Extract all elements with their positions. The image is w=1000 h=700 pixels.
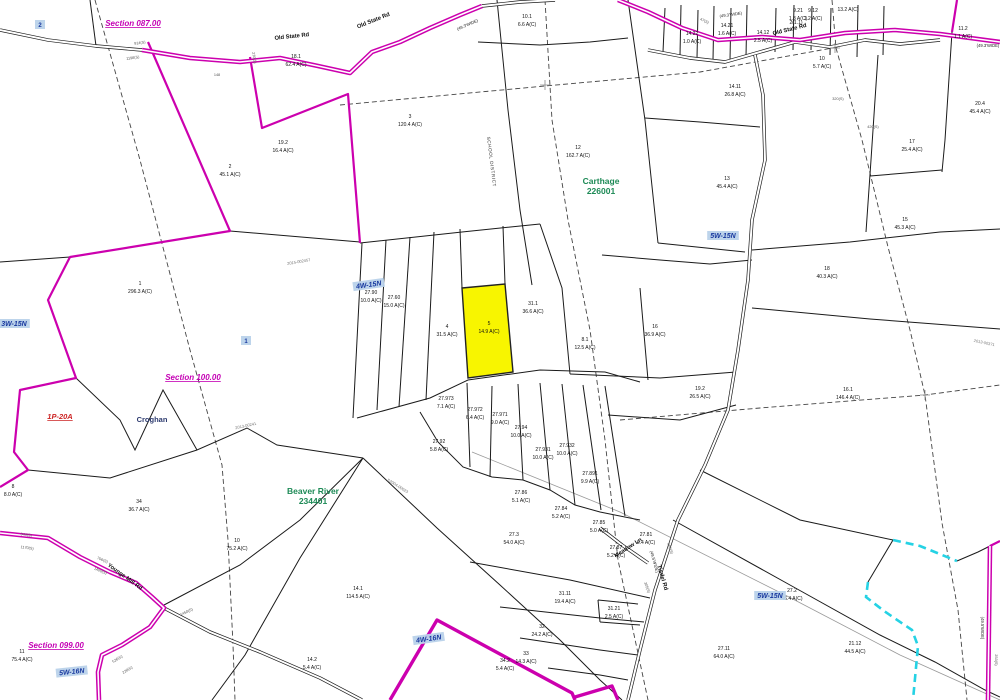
parcel-id: 27.3 (509, 532, 519, 538)
district-code: 234401 (299, 496, 328, 506)
parcel-acreage: 296.3 A(C) (128, 289, 152, 295)
road-name-label: Old State Rd (274, 32, 310, 42)
section-label: Section 087.00 (105, 19, 161, 28)
parcel-acreage: 6.6 A(C) (518, 22, 537, 28)
highlighted-parcel-id: 5 (488, 321, 491, 327)
parcel-acreage: 44.5 A(C) (844, 649, 865, 655)
school-district-label: SCHOOL DISTRICT (486, 136, 497, 187)
parcel-acreage: 36.7 A(C) (128, 507, 149, 513)
parcel-acreage: 36.6 A(C) (522, 309, 543, 315)
parcel-id: 27.94 (515, 425, 528, 431)
distance-label: 148 (214, 73, 220, 77)
parcel-id: 27.972 (467, 407, 483, 413)
parcel-id: 31.1 (528, 301, 538, 307)
parcel-acreage: 45.4 A(C) (716, 184, 737, 190)
parcel-id: 16.1 (843, 387, 853, 393)
road-name-label: Younge Mill Rd (106, 563, 143, 592)
parcel-id: 14.21 (721, 23, 734, 29)
parcel-id: 27.90 (365, 290, 378, 296)
parcel-acreage: 6.4 A(C) (466, 415, 485, 421)
distance-label: 1170(S) (20, 545, 34, 551)
parcel-acreage: 10.0 A(C) (360, 298, 381, 304)
parcel-acreage: 1.2 A(C) (804, 16, 823, 22)
parcel-id: 27.2 (787, 588, 797, 594)
parcel-acreage: 114.5 A(C) (346, 594, 370, 600)
parcel-id: 10 (234, 538, 240, 544)
tax-map: 1296.3 A(C)245.1 A(C)19.216.4 A(C)18.162… (0, 0, 1000, 700)
parcel-id: 11 (19, 649, 24, 655)
parcel-id: 3 (409, 114, 412, 120)
parcel-id: 14.1 (353, 586, 363, 592)
sheet-ref-label: 5W-15N (757, 593, 783, 600)
parcel-id: 17 (909, 139, 915, 145)
parcel-acreage: 2.5 A(C) (754, 38, 773, 44)
parcel-acreage: 2.5 A(C) (605, 614, 624, 620)
road-width-label: (49.3'WIDE) (977, 43, 1000, 48)
parcel-id: 27.973 (438, 396, 454, 402)
parcel-acreage: 75.4 A(C) (11, 657, 32, 663)
distance-label: 420(S) (867, 125, 879, 129)
parcel-acreage: 5.1 A(C) (512, 498, 531, 504)
district-name: Beaver River (287, 486, 340, 496)
parcel-id: 4 (446, 324, 449, 330)
parcel-acreage: 75.2 A(C) (226, 546, 247, 552)
parcel-id: 2 (229, 164, 232, 170)
parcel-id: 9.12 (808, 8, 818, 14)
parcel-id: 14.11 (729, 84, 741, 90)
parcel-acreage: 13.2 A(C) (837, 7, 858, 13)
deed-ref-label: S2004-00023 (386, 477, 410, 494)
parcel-id: 19.2 (695, 386, 705, 392)
parcel-acreage: 25.4 A(C) (901, 147, 922, 153)
distance-label: 253(S) (994, 654, 998, 666)
parcel-id: 15 (902, 217, 908, 223)
parcel-acreage: 26.8 A(C) (724, 92, 745, 98)
parcel-id: 10.1 (522, 14, 532, 20)
parcel-id: 18 (824, 266, 830, 272)
sheet-ref-label: 5W-16N (59, 668, 86, 678)
parcel-id: 20.4 (975, 101, 985, 107)
parcel-acreage: 45.3 A(C) (894, 225, 915, 231)
parcel-acreage: 64.0 A(C) (713, 654, 734, 660)
parcel-id: 34 (136, 499, 142, 505)
parcel-id: 27.891 (582, 471, 598, 477)
distance-label: 228(S) (122, 665, 134, 675)
parcel-id: 27.932 (559, 443, 575, 449)
parcel-id: 34.2 (500, 658, 510, 664)
parcel-id: 1 (139, 281, 142, 287)
parcel-id: 14.2 (307, 657, 317, 663)
parcel-id: 27.931 (535, 447, 551, 453)
parcel-id: 18.1 (291, 54, 301, 60)
parcel-id: 14.12 (757, 30, 770, 36)
place-label: Croghan (137, 415, 168, 424)
parcel-id: 27.92 (433, 439, 446, 445)
parcel-id: 8 (12, 484, 15, 490)
parcel-acreage: 5.4 A(C) (496, 666, 515, 672)
parcel-id: 27.85 (593, 520, 606, 526)
parcel-acreage: 1.1 A(C) (954, 34, 973, 40)
parcel-acreage: 10.0 A(C) (510, 433, 531, 439)
distance-label: 47(S) (699, 17, 710, 25)
district-name: Carthage (583, 176, 620, 186)
parcel-acreage: 31.5 A(C) (436, 332, 457, 338)
section-label: Section 100.00 (165, 373, 221, 382)
parcel-acreage: 14.3 A(C) (515, 659, 536, 665)
parcel-acreage: 19.4 A(C) (554, 599, 575, 605)
parcel-acreage: 1.0 A(C) (683, 39, 702, 45)
parcel-acreage: 5.4 A(C) (303, 665, 322, 671)
parcel-acreage: 5.8 A(C) (430, 447, 449, 453)
parcel-id: 27.971 (492, 412, 508, 418)
parcel-id: 27.81 (640, 532, 653, 538)
road-width-label: (49.5'WIDE) (649, 550, 660, 574)
parcel-acreage: 10.0 A(C) (556, 451, 577, 457)
parcel-id: 11.2 (958, 26, 968, 32)
section-corner-cross (920, 390, 930, 400)
parcel-acreage: 15.0 A(C) (383, 303, 404, 309)
parcel-id: 8.1 (582, 337, 589, 343)
parcel-acreage: 12.5 A(C) (574, 345, 595, 351)
parcel-acreage: 9.9 A(C) (581, 479, 600, 485)
section-corner-cross (540, 80, 550, 90)
parcel-acreage: 7.1 A(C) (437, 404, 456, 410)
parcel-acreage: 62.4 A(C) (285, 62, 306, 68)
parcel-id: 14.22 (686, 31, 699, 37)
distance-label: 1450(S) (180, 607, 195, 617)
parcel-acreage: 162.7 A(C) (566, 153, 590, 159)
parcel-id: 12 (575, 145, 581, 151)
parcel-id: 27.60 (388, 295, 401, 301)
parcel-id: 27.11 (718, 646, 730, 652)
road-name-label: Old State Rd (356, 12, 391, 31)
map-svg: 1296.3 A(C)245.1 A(C)19.216.4 A(C)18.162… (0, 0, 1000, 700)
parcel-acreage: 24.2 A(C) (531, 632, 552, 638)
parcel-id: 31.11 (559, 591, 571, 597)
parcel-acreage: 120.4 A(C) (398, 122, 422, 128)
parcel-acreage: 9.0 A(C) (491, 420, 510, 426)
parcel-id: 27.84 (555, 506, 568, 512)
sheet-ref-label: 3W-15N (1, 321, 27, 328)
parcel-acreage: 1.6 A(C) (718, 31, 737, 37)
parcel-acreage: 10.0 A(C) (532, 455, 553, 461)
parcel-id: 19.2 (278, 140, 288, 146)
parcel-acreage: 54.0 A(C) (503, 540, 524, 546)
parcel-acreage: 36.9 A(C) (644, 332, 665, 338)
distance-label: 305(S) (643, 582, 651, 595)
parcel-id: 33 (523, 651, 529, 657)
distance-label: 320(S) (832, 97, 844, 101)
parcel-acreage: 5.2 A(C) (552, 514, 571, 520)
parcel-id: 31.21 (608, 606, 621, 612)
parcel-acreage: 8.0 A(C) (4, 492, 23, 498)
parcel-acreage: 45.4 A(C) (969, 109, 990, 115)
parcel-acreage: 45.1 A(C) (219, 172, 240, 178)
road-width-label: (49.5'WIDE) (980, 617, 985, 640)
parcel-id: 16 (652, 324, 658, 330)
highlighted-parcel-acreage: 14.9 A(C) (478, 329, 499, 335)
distance-label: 1198(S) (126, 55, 140, 61)
parcel-acreage: 26.5 A(C) (689, 394, 710, 400)
sheet-ref-label: 5W-15N (710, 233, 736, 240)
deed-ref-label: 2015-002457 (287, 257, 312, 266)
parcel-acreage: 5.7 A(C) (813, 64, 832, 70)
distance-label: 706(S) (96, 556, 109, 564)
parcel-id: 13 (724, 176, 730, 182)
parcel-id: 10 (819, 56, 825, 62)
distance-label: 914(S) (134, 40, 147, 46)
road-width-label: (49.3'WIDE) (456, 17, 479, 31)
plate-ref-label: 1P-20A (47, 412, 72, 421)
district-code: 226001 (587, 186, 616, 196)
parcel-acreage: 146.4 A(C) (836, 395, 860, 401)
parcel-acreage: 40.3 A(C) (816, 274, 837, 280)
parcel-id: 27.86 (515, 490, 528, 496)
parcel-id: 32 (539, 624, 545, 630)
section-label: Section 099.00 (28, 641, 84, 650)
distance-label: 526(S) (112, 654, 124, 664)
parcel-id: 9.21 (793, 8, 803, 14)
parcel-acreage: 5.0 A(C) (590, 528, 609, 534)
parcel-acreage: 16.4 A(C) (272, 148, 293, 154)
parcel-id: 21.12 (849, 641, 862, 647)
deed-ref-label: 2013-00371 (973, 338, 996, 347)
